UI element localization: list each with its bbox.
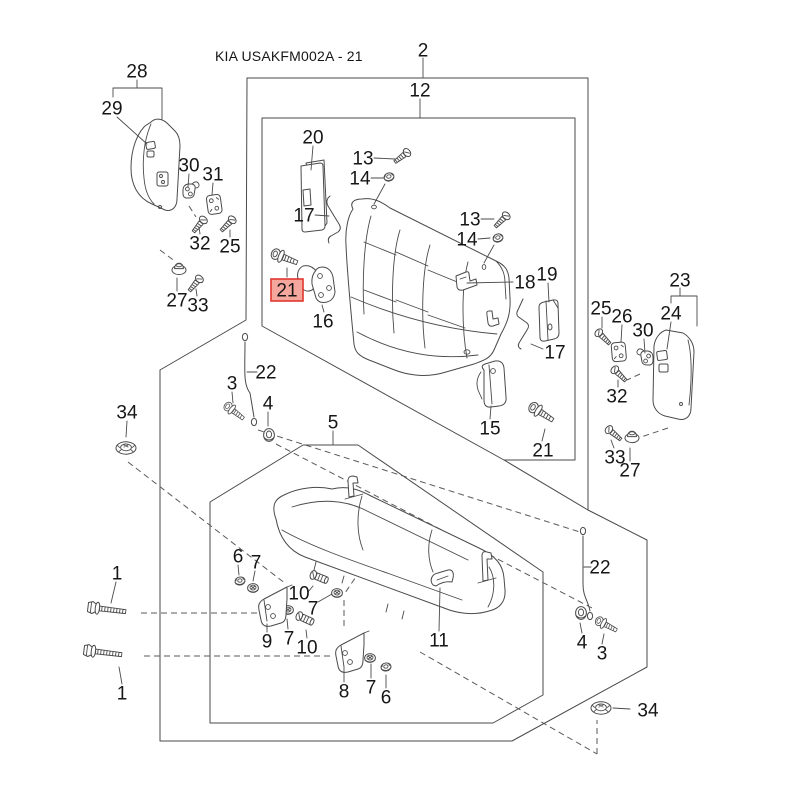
svg-text:30: 30: [632, 321, 653, 342]
svg-text:22: 22: [255, 363, 276, 384]
part-label-17[interactable]: 17: [293, 206, 314, 227]
grommet-part4-left: [264, 429, 275, 442]
parts-catalog-page: KIA USAKFM002A - 21 21228293031322527332…: [0, 0, 800, 800]
part-label-25[interactable]: 25: [590, 299, 611, 320]
nut-part6-left: [234, 576, 245, 586]
svg-text:32: 32: [189, 234, 210, 255]
svg-text:20: 20: [302, 128, 323, 149]
svg-text:8: 8: [339, 682, 350, 703]
screw-part25-right: [593, 327, 612, 346]
part-label-24[interactable]: 24: [660, 304, 682, 325]
bolt-part1-lower: [83, 644, 122, 661]
svg-text:7: 7: [251, 553, 262, 574]
part-label-4[interactable]: 4: [263, 394, 274, 415]
part-label-30[interactable]: 30: [178, 156, 199, 177]
svg-text:27: 27: [619, 461, 640, 482]
left-side-panel-group: [131, 119, 238, 294]
part-label-12[interactable]: 12: [409, 81, 430, 102]
nut-part7-b: [332, 589, 343, 598]
screw-part33-left: [186, 274, 205, 294]
bolt-part10-upper: [309, 570, 330, 585]
screw-part33-right: [604, 424, 624, 443]
svg-text:16: 16: [312, 312, 333, 333]
part-label-32[interactable]: 32: [606, 387, 627, 408]
part-label-27[interactable]: 27: [619, 461, 640, 482]
svg-text:21: 21: [532, 441, 553, 462]
floor-bracket-part8: [336, 631, 369, 672]
svg-text:29: 29: [101, 99, 122, 120]
svg-text:1: 1: [112, 564, 123, 585]
part-label-2[interactable]: 2: [418, 41, 429, 62]
nut-part14-right: [492, 233, 504, 243]
nut-part6-right: [380, 662, 391, 672]
svg-text:14: 14: [456, 230, 478, 251]
part-label-32[interactable]: 32: [189, 234, 210, 255]
svg-text:24: 24: [660, 304, 682, 325]
svg-text:11: 11: [429, 631, 449, 652]
svg-text:9: 9: [262, 632, 273, 653]
svg-text:33: 33: [187, 296, 208, 317]
seat-back-cushion: [346, 199, 510, 376]
part-label-6[interactable]: 6: [233, 547, 244, 568]
part-label-23[interactable]: 23: [669, 271, 690, 292]
part-label-17[interactable]: 17: [544, 343, 565, 364]
part-label-21[interactable]: 21: [271, 279, 303, 302]
svg-text:10: 10: [296, 638, 317, 659]
svg-text:22: 22: [589, 558, 610, 579]
screw-part32-right: [609, 364, 628, 383]
part-label-14[interactable]: 14: [456, 230, 478, 251]
part-label-3[interactable]: 3: [227, 374, 238, 395]
cap-nut-part27-right: [625, 431, 639, 442]
svg-text:3: 3: [597, 644, 608, 665]
svg-text:2: 2: [418, 41, 429, 62]
svg-text:13: 13: [459, 210, 480, 231]
cable-ring: [580, 527, 585, 534]
svg-text:10: 10: [288, 584, 309, 605]
svg-text:25: 25: [590, 299, 611, 320]
part-label-3[interactable]: 3: [597, 644, 608, 665]
rod-part17-right: [517, 299, 529, 349]
svg-text:3: 3: [227, 374, 238, 395]
bolt-part3-right: [593, 615, 619, 636]
part-label-22[interactable]: 22: [589, 558, 610, 579]
part-label-6[interactable]: 6: [381, 688, 392, 709]
bolt-part1-upper: [87, 601, 126, 618]
svg-text:27: 27: [166, 291, 187, 312]
svg-text:34: 34: [637, 701, 659, 722]
svg-text:14: 14: [349, 169, 371, 190]
part-label-30[interactable]: 30: [632, 321, 653, 342]
part-label-13[interactable]: 13: [459, 210, 480, 231]
bracket-part15: [477, 361, 506, 407]
nut-part34-left: [116, 442, 136, 454]
part-label-31[interactable]: 31: [202, 165, 223, 186]
svg-text:28: 28: [126, 62, 147, 83]
svg-text:7: 7: [366, 678, 377, 699]
svg-text:4: 4: [263, 394, 274, 415]
cable-ring: [251, 418, 256, 425]
svg-text:12: 12: [409, 81, 430, 102]
part-label-18[interactable]: 18: [514, 273, 535, 294]
part-label-7[interactable]: 7: [284, 629, 295, 650]
part-label-4[interactable]: 4: [577, 633, 588, 654]
svg-text:7: 7: [284, 629, 295, 650]
nut-part34-right: [591, 702, 611, 714]
svg-text:1: 1: [117, 684, 128, 705]
svg-text:34: 34: [116, 403, 138, 424]
svg-text:30: 30: [178, 156, 199, 177]
svg-text:26: 26: [611, 307, 632, 328]
part-label-29[interactable]: 29: [101, 99, 122, 120]
svg-text:6: 6: [233, 547, 244, 568]
strap-part19: [539, 300, 559, 341]
bolt-part21-highlighted: [269, 247, 299, 269]
side-bolster-panel-right: [653, 330, 694, 419]
bracket-part31: [206, 194, 223, 215]
svg-text:7: 7: [308, 599, 319, 620]
region-divider-line: [504, 460, 588, 510]
svg-text:19: 19: [536, 265, 557, 286]
parts-diagram: KIA USAKFM002A - 21 21228293031322527332…: [0, 0, 800, 800]
part-label-9[interactable]: 9: [262, 632, 273, 653]
cap-nut-part27-left: [172, 263, 186, 274]
part-label-22[interactable]: 22: [255, 363, 276, 384]
part-label-10[interactable]: 10: [296, 638, 317, 659]
side-bolster-panel-left: [131, 119, 180, 210]
svg-text:4: 4: [577, 633, 588, 654]
part-label-28[interactable]: 28: [126, 62, 147, 83]
part-label-14[interactable]: 14: [349, 169, 371, 190]
diagram-code: KIA USAKFM002A - 21: [215, 48, 363, 64]
part-label-21[interactable]: 21: [532, 441, 553, 462]
nut-part7-d: [365, 654, 376, 663]
cable-ring: [242, 333, 247, 340]
svg-text:15: 15: [479, 419, 500, 440]
cable-ring: [587, 612, 592, 619]
nut-part14-left: [383, 172, 395, 182]
svg-text:21: 21: [276, 281, 297, 302]
svg-text:31: 31: [202, 165, 223, 186]
part-label-13[interactable]: 13: [352, 149, 373, 170]
part-label-15[interactable]: 15: [479, 419, 500, 440]
bolt-part3-left: [222, 400, 247, 423]
bolt-part21-right: [526, 400, 556, 426]
part-label-7[interactable]: 7: [308, 599, 319, 620]
screw-part25-left: [218, 214, 237, 233]
part-label-34[interactable]: 34: [116, 403, 138, 424]
svg-text:32: 32: [606, 387, 627, 408]
svg-text:23: 23: [669, 271, 690, 292]
rod-part17-left: [327, 196, 340, 243]
bracket-part26: [611, 342, 627, 362]
part-label-1[interactable]: 1: [117, 684, 128, 705]
svg-text:18: 18: [514, 273, 535, 294]
right-side-panel-group: [593, 327, 694, 443]
part-label-7[interactable]: 7: [366, 678, 377, 699]
part-label-33[interactable]: 33: [187, 296, 208, 317]
part-label-20[interactable]: 20: [302, 128, 323, 149]
svg-text:17: 17: [293, 206, 314, 227]
svg-text:6: 6: [381, 688, 392, 709]
svg-text:25: 25: [219, 237, 240, 258]
part-label-34[interactable]: 34: [637, 701, 659, 722]
part-label-7[interactable]: 7: [251, 553, 262, 574]
part-label-25[interactable]: 25: [219, 237, 240, 258]
grommet-part4-right: [576, 607, 587, 620]
part-label-26[interactable]: 26: [611, 307, 632, 328]
hinge-part30-left: [183, 182, 199, 198]
screw-part13-left: [392, 147, 412, 165]
part-label-10[interactable]: 10: [288, 584, 309, 605]
part-label-19[interactable]: 19: [536, 265, 557, 286]
part-label-27[interactable]: 27: [166, 291, 187, 312]
part-label-1[interactable]: 1: [112, 564, 123, 585]
part-label-8[interactable]: 8: [339, 682, 350, 703]
svg-text:13: 13: [352, 149, 373, 170]
part-label-5[interactable]: 5: [328, 413, 339, 434]
part-label-16[interactable]: 16: [312, 312, 333, 333]
cable-part22-left: [245, 342, 254, 417]
part-label-11[interactable]: 11: [429, 631, 449, 652]
svg-text:5: 5: [328, 413, 339, 434]
svg-text:17: 17: [544, 343, 565, 364]
screw-part13-right: [492, 210, 511, 229]
nut-part7-a: [248, 584, 259, 593]
